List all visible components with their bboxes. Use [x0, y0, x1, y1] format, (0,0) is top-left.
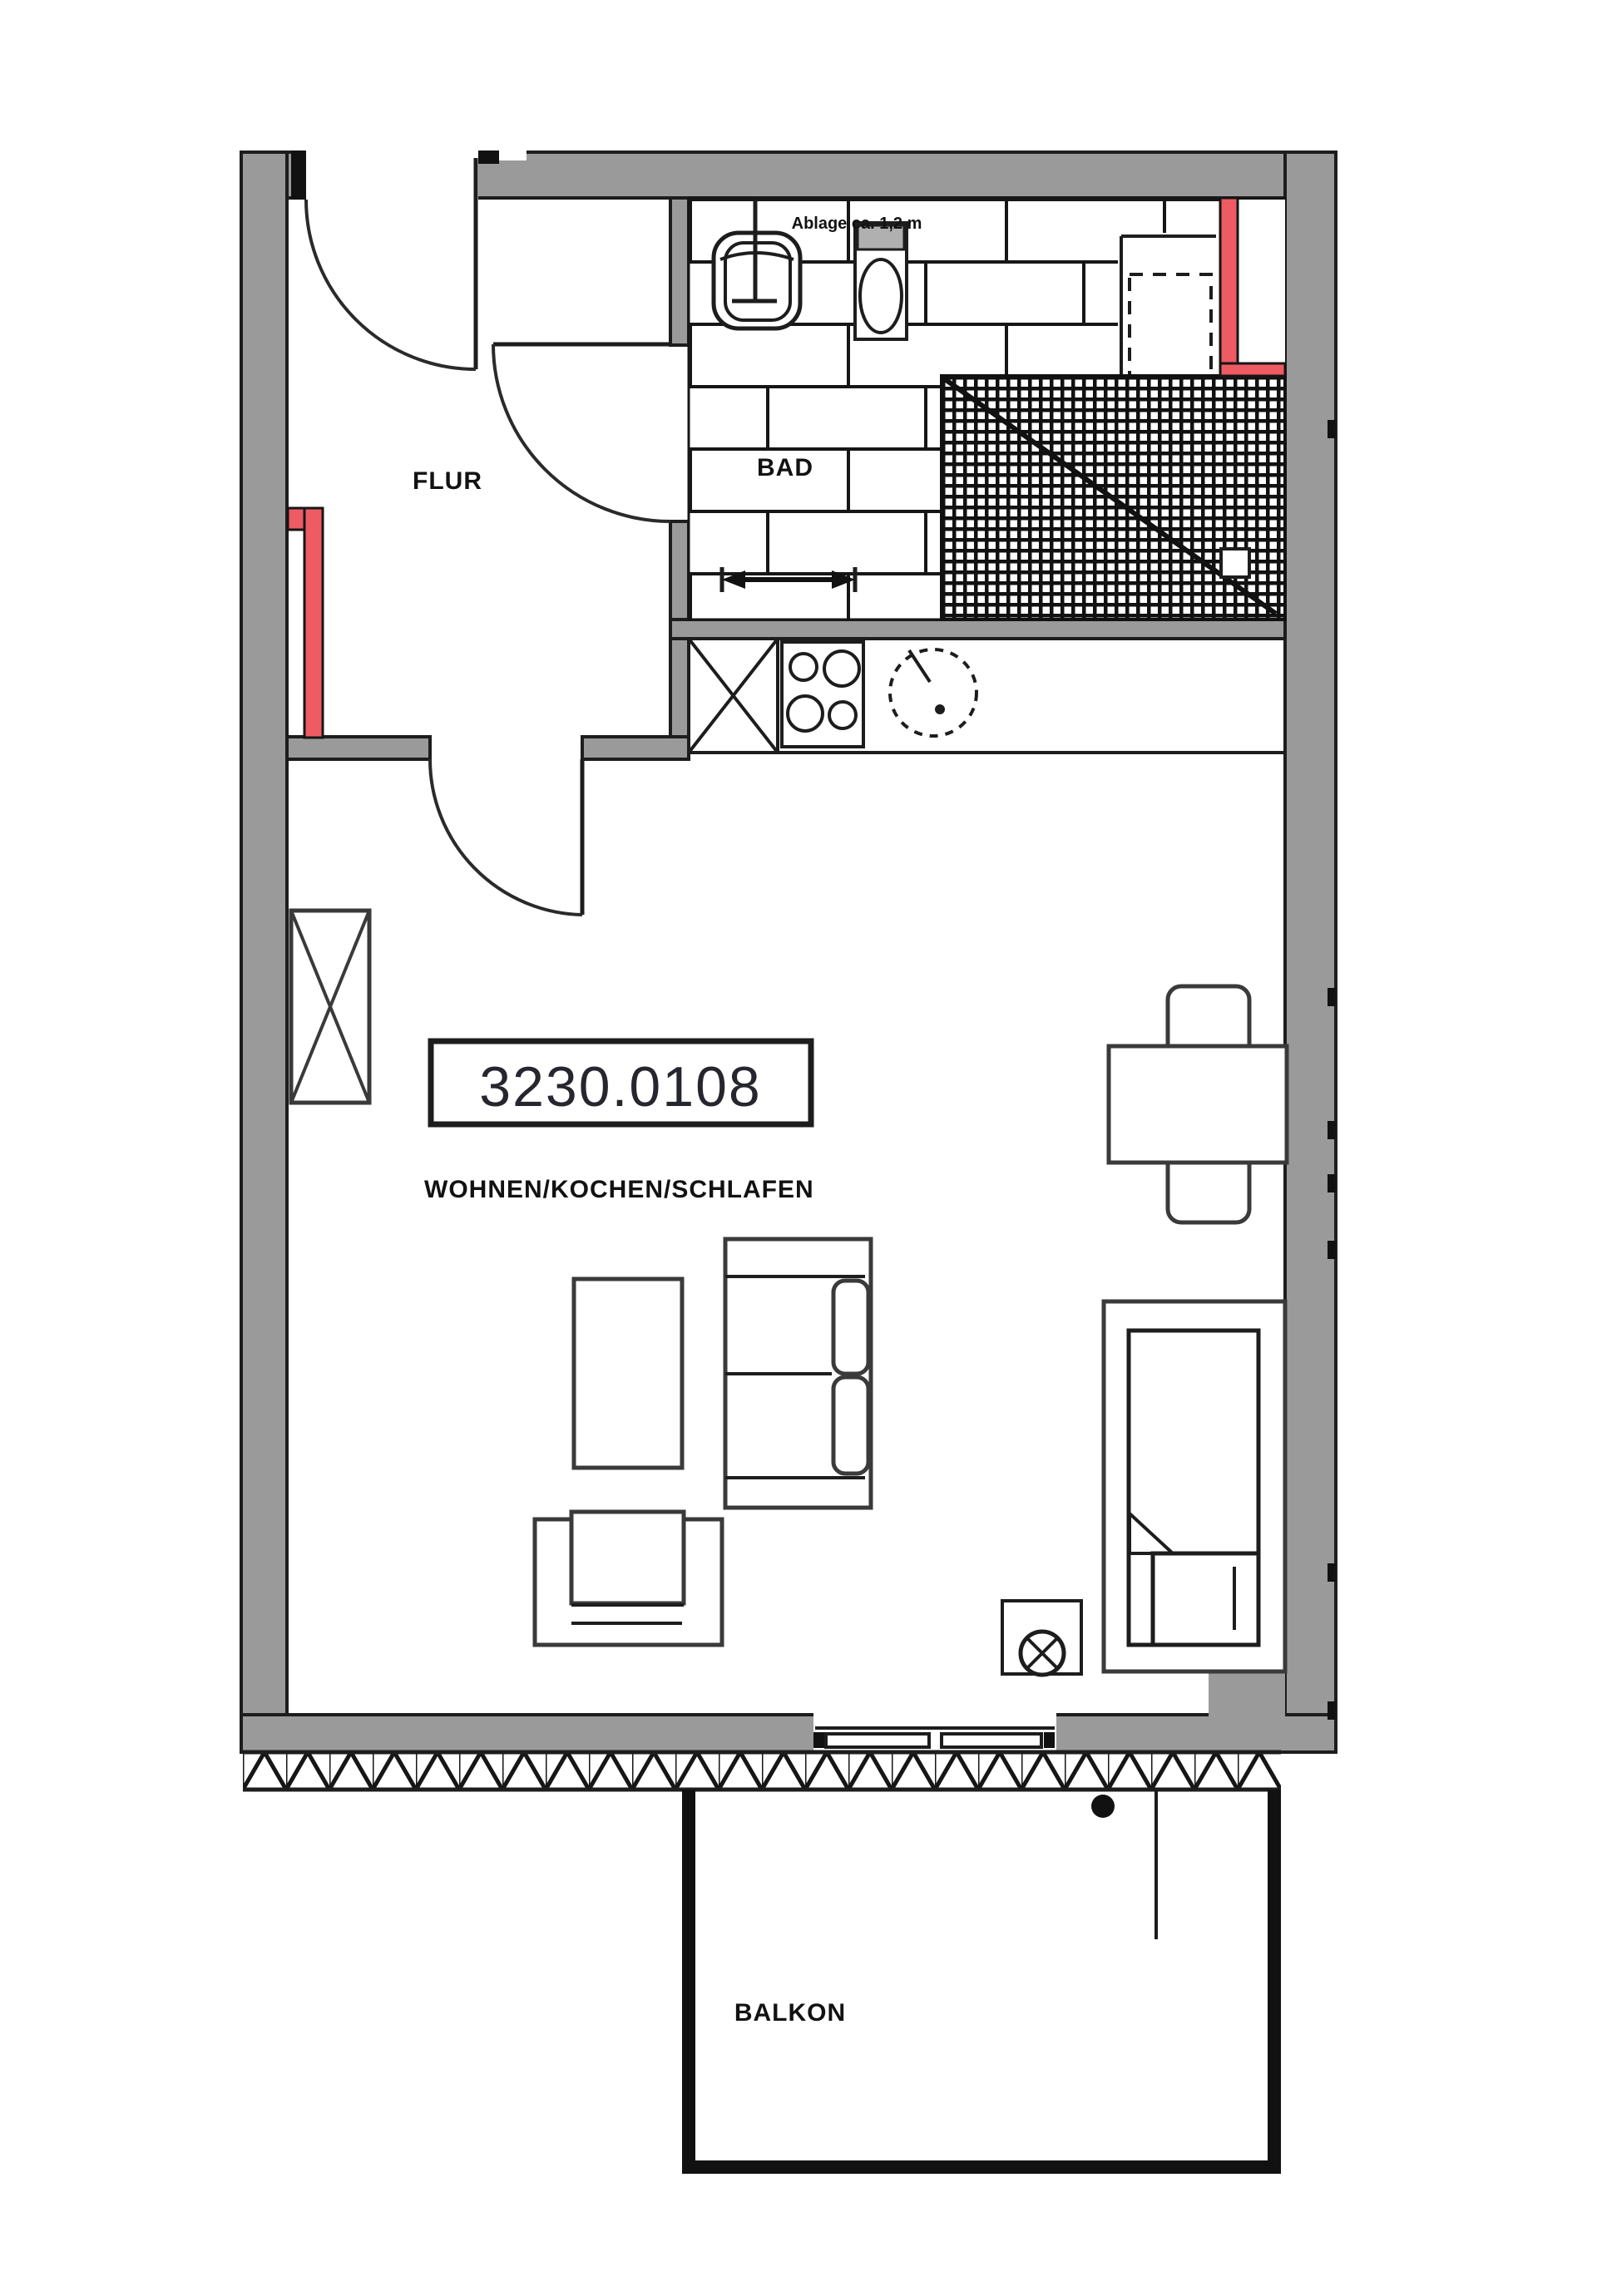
wall-bottom — [241, 1715, 1336, 1752]
toilet-bowl — [860, 259, 902, 333]
label-shelf-note: Ablage ca. 1,2 m — [792, 215, 922, 233]
floor-socket-symbol — [1002, 1601, 1081, 1675]
bed-blanket — [1153, 1553, 1258, 1645]
wall-flur-bottom-left — [287, 737, 430, 759]
shower-drain — [1221, 549, 1249, 577]
kitchen — [689, 639, 1285, 753]
balcony-door-jamb-left — [813, 1732, 824, 1748]
washing-machine-dashed — [1130, 274, 1211, 376]
red-wall-right-vertical — [1220, 198, 1238, 376]
sofa-back-cushion-1 — [833, 1281, 868, 1374]
balcony-door-jamb-right — [1044, 1732, 1055, 1748]
label-flur: FLUR — [413, 467, 482, 495]
red-wall-left-bar — [304, 508, 323, 738]
wall-left — [241, 152, 287, 1752]
balcony-door-panel-left — [826, 1734, 929, 1747]
sofa — [725, 1239, 871, 1508]
wall-right — [1285, 152, 1336, 1752]
armchair — [535, 1512, 722, 1645]
toilet — [855, 223, 907, 339]
armchair-seat — [571, 1512, 684, 1603]
threshold-strip — [243, 1752, 1281, 1790]
entrance-jamb-right — [478, 151, 499, 164]
bed — [1104, 1301, 1285, 1671]
unit-number-text: 3230.0108 — [479, 1055, 761, 1118]
floor-plan-drawing: 3230.0108 FLUR BAD Ablage ca. 1,2 m WOHN… — [0, 0, 1597, 2296]
wall-flur-bad-upper — [670, 198, 689, 345]
label-bad: BAD — [757, 454, 813, 481]
balcony-door-panel-right — [942, 1734, 1041, 1747]
coffee-table — [574, 1279, 682, 1468]
wall-bottom-right-pier — [1209, 1671, 1285, 1717]
unit-number-box: 3230.0108 — [431, 1041, 811, 1124]
balcony-wall-right — [1268, 1790, 1281, 2172]
red-wall-right-foot — [1220, 363, 1285, 376]
balcony-wall-left — [682, 1790, 695, 2172]
label-living: WOHNEN/KOCHEN/SCHLAFEN — [424, 1176, 814, 1203]
dining-table — [1109, 1046, 1287, 1163]
sofa-back-cushion-2 — [833, 1377, 868, 1474]
balcony-wall-bottom — [682, 2160, 1281, 2174]
top-wall-notch — [499, 149, 527, 160]
entrance-jamb-left — [291, 151, 306, 200]
bathroom — [689, 198, 1285, 620]
shaft-clear — [1238, 200, 1285, 363]
entrance-opening — [306, 149, 478, 200]
wall-bad-bottom — [670, 620, 1285, 639]
kitchen-sink-drain — [935, 704, 945, 714]
label-balkon: BALKON — [734, 1999, 846, 2027]
wall-flur-bottom-right — [582, 737, 689, 759]
floor-plan-page: 3230.0108 FLUR BAD Ablage ca. 1,2 m WOHN… — [0, 0, 1597, 2296]
downpipe-dot — [1091, 1795, 1115, 1818]
